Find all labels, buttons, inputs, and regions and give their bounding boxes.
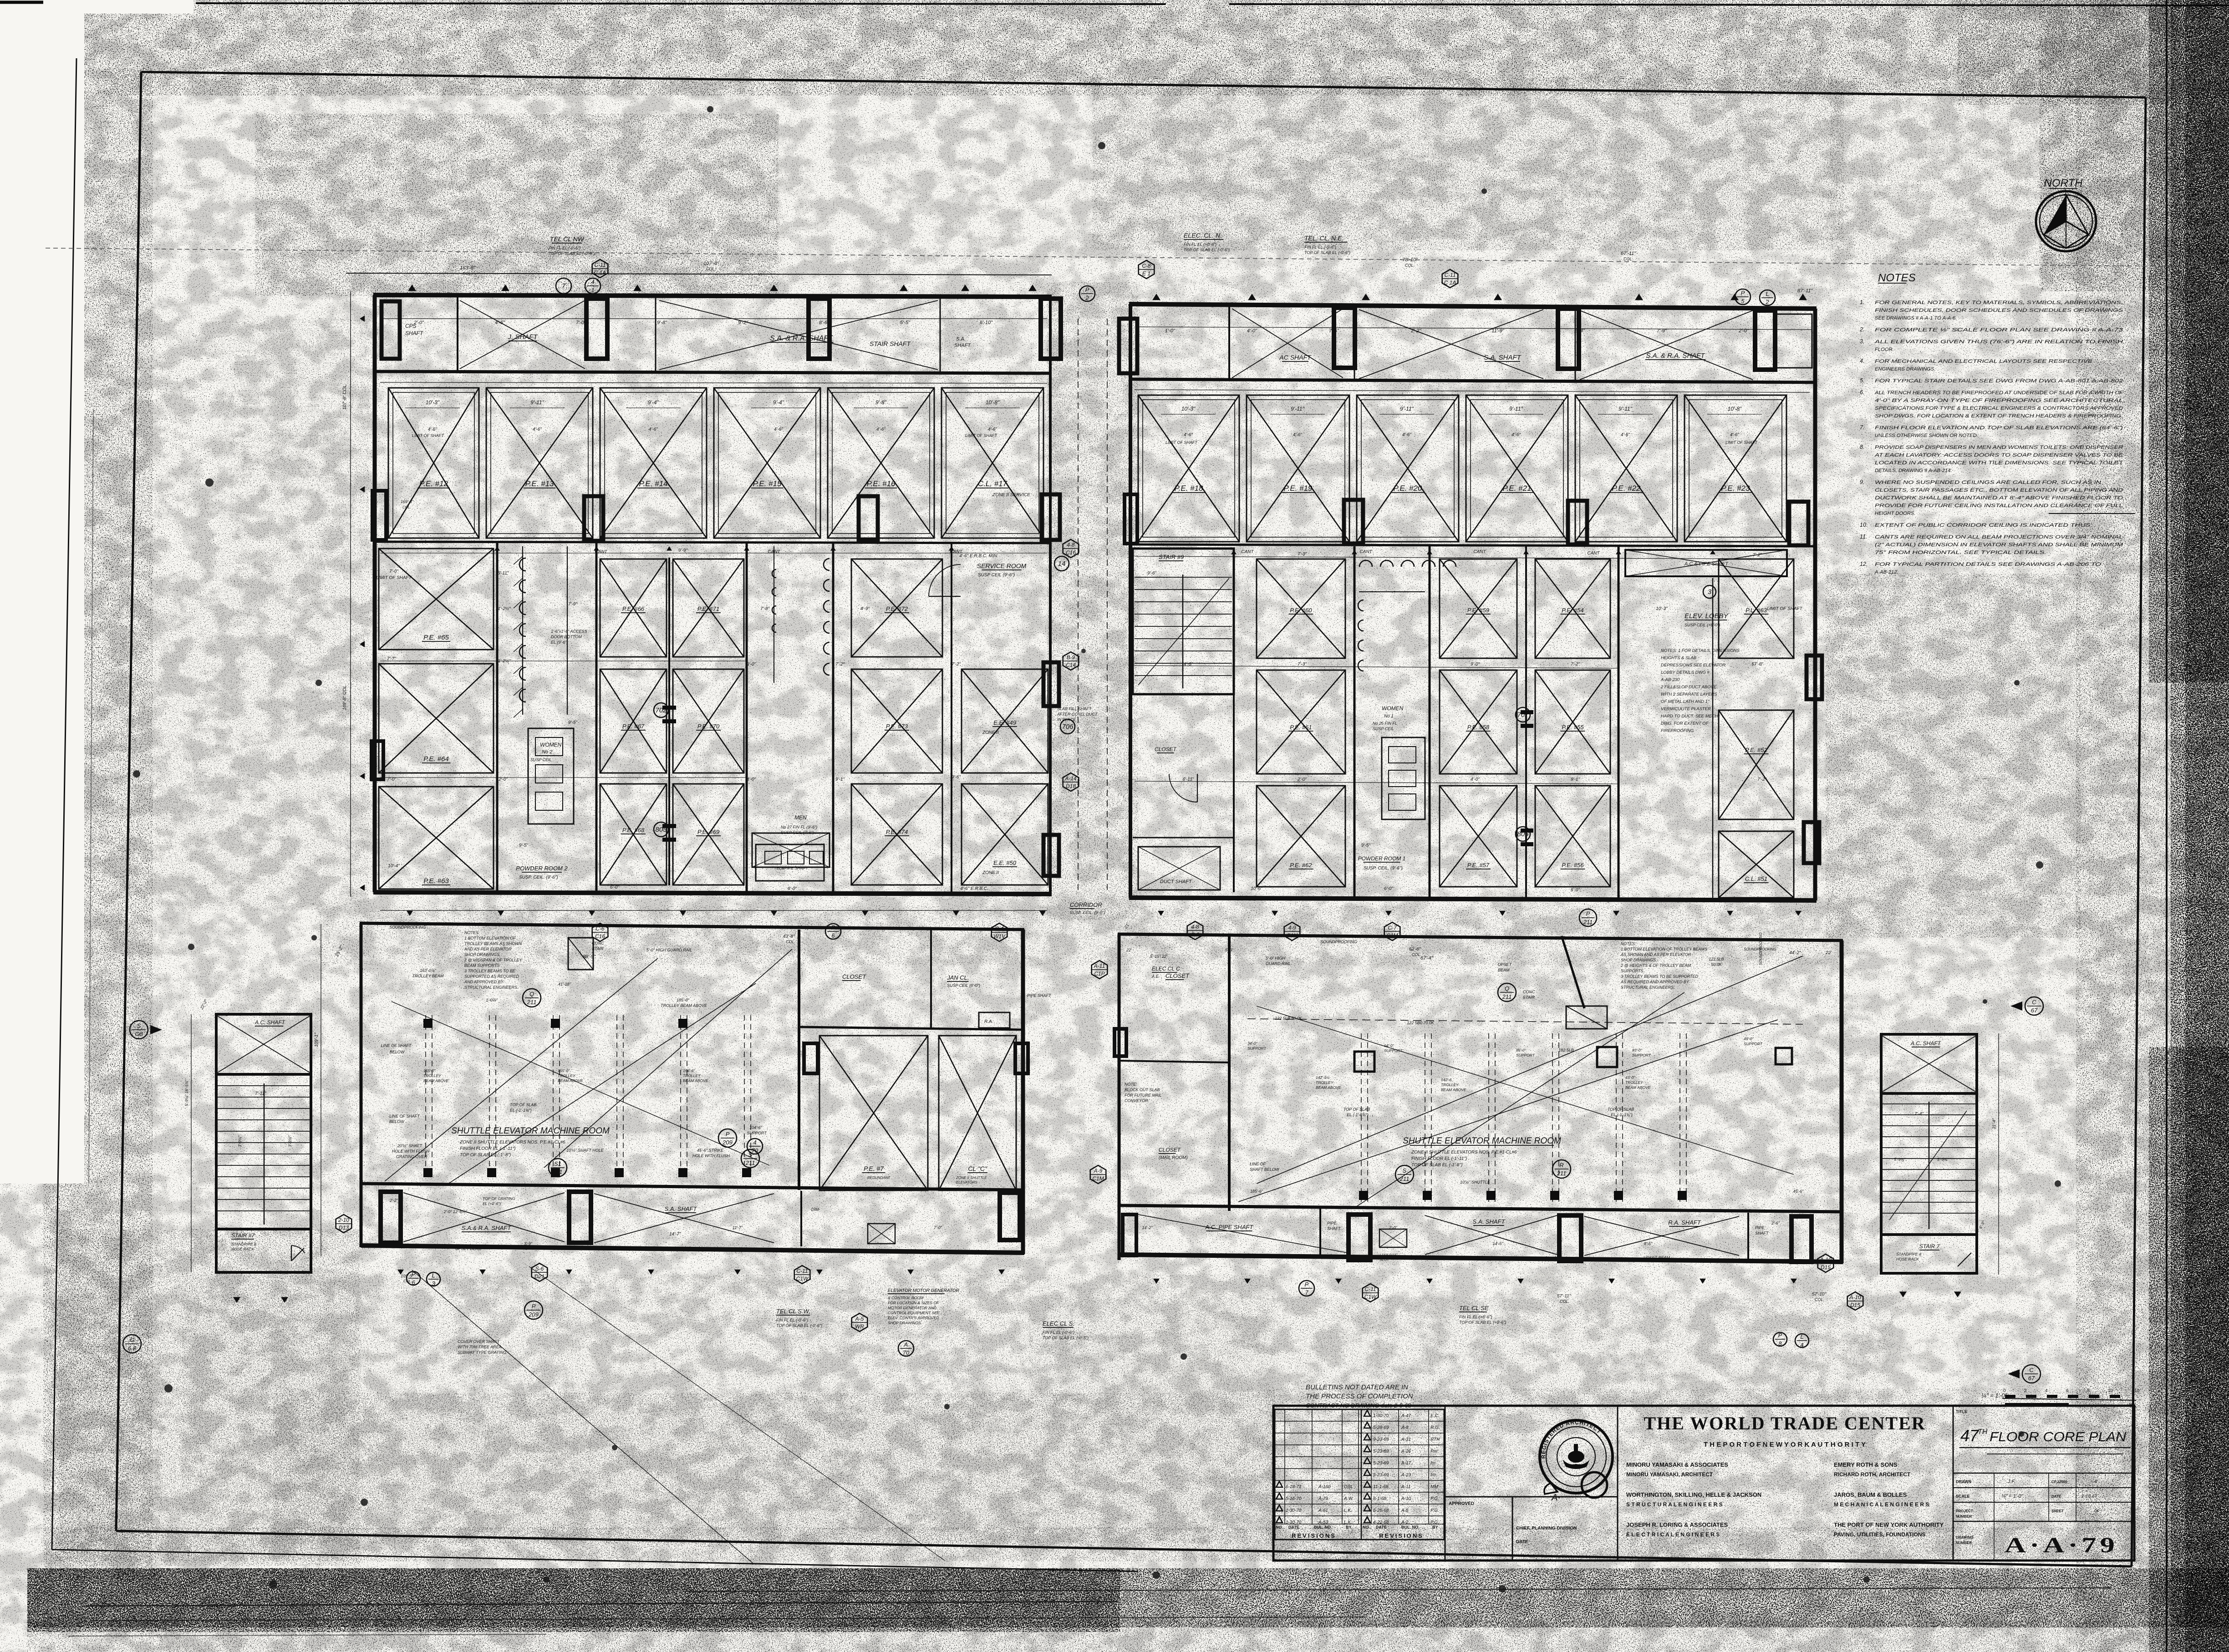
svg-text:& CONTROL ROOM: & CONTROL ROOM: [888, 1296, 924, 1300]
svg-text:¼" = 1'-0": ¼" = 1'-0": [2001, 1494, 2024, 1499]
svg-text:A-160: A-160: [1318, 1484, 1331, 1489]
svg-text:9'-4": 9'-4": [648, 399, 659, 406]
svg-text:34'-0": 34'-0": [1247, 1041, 1258, 1046]
svg-text:SUPPORT: SUPPORT: [1744, 1042, 1763, 1046]
svg-text:SUSP. CEIL. (9'-6"): SUSP. CEIL. (9'-6"): [519, 875, 558, 880]
svg-text:ZONE II: ZONE II: [982, 730, 999, 735]
svg-text:(MAIL ROOM): (MAIL ROOM): [1159, 1155, 1188, 1160]
svg-text:5'-9¾": 5'-9¾": [1894, 1157, 1906, 1162]
svg-text:SOUNDPROOFING: SOUNDPROOFING: [1744, 947, 1776, 951]
svg-text:4'-6": 4'-6": [533, 427, 542, 432]
svg-text:4'-6": 4'-6": [428, 427, 437, 432]
svg-text:6'-0": 6'-0": [788, 886, 797, 891]
svg-text:STRUCTURAL ENGINEERS.: STRUCTURAL ENGINEERS.: [1621, 985, 1674, 990]
svg-text:57'-11": 57'-11": [1557, 1294, 1571, 1299]
svg-text:SUSP. CEIL. (9'-6"): SUSP. CEIL. (9'-6"): [1364, 866, 1403, 871]
svg-text:TOP OF SLAB: TOP OF SLAB: [510, 1103, 536, 1107]
svg-text:SUSP CEIL (9'-6"): SUSP CEIL (9'-6"): [978, 573, 1015, 578]
svg-text:CANTS ARE REQUIRED ON ALL BEAM: CANTS ARE REQUIRED ON ALL BEAM PROJECTIO…: [1875, 534, 2123, 540]
svg-text:70: 70: [752, 1147, 758, 1154]
svg-text:43'-8": 43'-8": [783, 934, 795, 939]
svg-text:A-10: A-10: [1819, 1256, 1832, 1263]
svg-text:FOR GENERAL NOTES, KEY TO MATE: FOR GENERAL NOTES, KEY TO MATERIALS, SYM…: [1875, 300, 2123, 305]
svg-text:STAIR: STAIR: [1523, 995, 1535, 1000]
svg-text:TROLLEY BEAM: TROLLEY BEAM: [412, 974, 444, 978]
svg-text:2 FILL&SLOP DUCT ABOVE: 2 FILL&SLOP DUCT ABOVE: [1660, 685, 1717, 690]
svg-text:P.E. #59: P.E. #59: [1467, 607, 1489, 614]
svg-text:6'-10": 6'-10": [980, 320, 993, 325]
svg-text:9'-1": 9'-1": [835, 777, 845, 782]
svg-text:CONTRACT NO DRAWING da: CONTRACT NO DRAWING date 2-9-68: [1306, 1402, 1411, 1409]
svg-text:OF METAL LATH AND 1": OF METAL LATH AND 1": [1661, 699, 1710, 704]
svg-text:OSL: OSL: [1344, 1484, 1353, 1489]
svg-text:A.C. SHAFT: A.C. SHAFT: [254, 1019, 286, 1026]
svg-text:P.E. #21: P.E. #21: [1502, 484, 1531, 493]
svg-text:SUSP. CEIL. (9'-0"): SUSP. CEIL. (9'-0"): [1070, 910, 1105, 915]
svg-text:3: 3: [432, 1280, 435, 1287]
svg-text:FINISH FLOOR EL (-1'-11"): FINISH FLOOR EL (-1'-11"): [1411, 1156, 1467, 1161]
svg-text:FIREPROOFING: FIREPROOFING: [1661, 728, 1694, 733]
svg-text:4'-0" BY A SPRAY-ON TYPE OF FI: 4'-0" BY A SPRAY-ON TYPE OF FIREPROOFING…: [1875, 398, 2123, 403]
svg-text:JAROS, BAUM & BOLLES: JAROS, BAUM & BOLLES: [1834, 1491, 1907, 1498]
svg-text:FIN FL EL (-0'-6"): FIN FL EL (-0'-6"): [549, 246, 580, 250]
svg-text:11'-2½": 11'-2½": [495, 606, 511, 611]
svg-text:ELEC. CL. N.: ELEC. CL. N.: [1184, 232, 1222, 239]
svg-text:ELEC CL S.: ELEC CL S.: [1043, 1320, 1074, 1327]
svg-text:LIMIT OF SHAFT: LIMIT OF SHAFT: [1725, 440, 1758, 445]
svg-text:83'-0": 83'-0": [1632, 1048, 1643, 1052]
svg-text:RTH: RTH: [1430, 1437, 1440, 1442]
svg-text:HOLE WITH FLUSH: HOLE WITH FLUSH: [692, 1154, 730, 1158]
svg-text:9'-5": 9'-5": [1361, 843, 1370, 848]
svg-text:7'-3": 7'-3": [1298, 552, 1307, 557]
svg-text:SPECIFICATIONS FOR TYPE & ELEC: SPECIFICATIONS FOR TYPE & ELECTRICAL ENG…: [1875, 406, 2123, 411]
svg-text:11-1-68: 11-1-68: [1373, 1484, 1389, 1489]
svg-text:A-14: A-14: [1064, 775, 1077, 782]
svg-text:169'-8" COL.: 169'-8" COL.: [342, 684, 347, 710]
svg-text:SUPPORT: SUPPORT: [1632, 1053, 1651, 1057]
svg-text:STRUCTURAL ENGINEERS.: STRUCTURAL ENGINEERS.: [464, 985, 518, 990]
svg-text:P.E. #12: P.E. #12: [419, 479, 448, 488]
svg-text:67'-11": 67'-11": [1621, 251, 1636, 256]
svg-text:P: P: [1085, 286, 1089, 293]
svg-text:CONC: CONC: [1523, 990, 1535, 994]
svg-text:4: 4: [2045, 1388, 2048, 1393]
svg-text:P: P: [1741, 290, 1745, 296]
svg-text:7'-2": 7'-2": [1757, 777, 1766, 782]
svg-text:IN PLACE: IN PLACE: [1057, 717, 1076, 722]
svg-text:156'-6": 156'-6": [683, 1068, 695, 1073]
svg-text:NUMBER: NUMBER: [1956, 1515, 1972, 1519]
svg-text:9'-11": 9'-11": [1509, 406, 1523, 412]
svg-text:1 BOTTOM ELEVATION OF TROLLEY: 1 BOTTOM ELEVATION OF TROLLEY BEAMS: [1621, 947, 1707, 951]
svg-text:FIN FL EL (-0'-6"): FIN FL EL (-0'-6"): [1043, 1330, 1074, 1335]
svg-text:WOMEN: WOMEN: [1382, 705, 1404, 712]
svg-text:E L E C T R I C A L E N G I: E L E C T R I C A L E N G I N E E R S: [1626, 1531, 1720, 1538]
svg-text:1'-0": 1'-0": [1165, 328, 1176, 334]
svg-text:S.A. SHAFT: S.A. SHAFT: [1484, 354, 1522, 361]
svg-text:182 5LB: 182 5LB: [1558, 1048, 1574, 1052]
svg-text:CLOSETS, STAIR PASSAGES ETC.,: CLOSETS, STAIR PASSAGES ETC., BOTTOM ELE…: [1875, 488, 2123, 493]
svg-text:5'-9¾": 5'-9¾": [1937, 1157, 1949, 1162]
svg-text:2.: 2.: [1859, 326, 1864, 333]
svg-text:4'-6": 4'-6": [876, 427, 885, 432]
svg-text:P.E. #61: P.E. #61: [1290, 724, 1312, 731]
svg-text:4'-6": 4'-6": [1730, 432, 1739, 437]
svg-text:CHIEF, PLANNING DIVISION: CHIEF, PLANNING DIVISION: [1516, 1526, 1577, 1531]
svg-text:CONVEYOR.: CONVEYOR.: [1125, 1098, 1149, 1103]
svg-text:ZONE II SHUTTLE ELEVATORS NOS.: ZONE II SHUTTLE ELEVATORS NOS. P.E.#1-CL…: [459, 1140, 565, 1145]
svg-text:6'-0": 6'-0": [1571, 888, 1580, 893]
svg-text:C-11: C-11: [796, 1268, 808, 1274]
svg-text:211: 211: [745, 1159, 755, 1166]
svg-text:ELEVATORS: ELEVATORS: [956, 1180, 978, 1184]
svg-text:A-47: A-47: [1401, 1413, 1411, 1418]
svg-text:P.E. #66: P.E. #66: [622, 605, 645, 612]
svg-text:CORRIDOR: CORRIDOR: [1070, 901, 1102, 908]
svg-text:BEAM SUPPORTS: BEAM SUPPORTS: [464, 963, 499, 968]
svg-text:SHOP DRAWINGS.: SHOP DRAWINGS.: [464, 952, 501, 957]
svg-text:P.E. #68: P.E. #68: [622, 827, 645, 834]
svg-text:3'-9¾": 3'-9¾": [288, 1135, 292, 1147]
svg-text:L.K.: L.K.: [1344, 1508, 1352, 1513]
svg-text:P: P: [1586, 910, 1590, 917]
svg-text:SHUTTLE ELEVATOR MACHINE RO: SHUTTLE ELEVATOR MACHINE ROOM: [1403, 1136, 1561, 1146]
svg-text:7'-2": 7'-2": [835, 662, 845, 667]
svg-text:2'-0": 2'-0": [1738, 328, 1749, 334]
svg-text:SUPPORT: SUPPORT: [1384, 1048, 1403, 1053]
svg-text:P.E. #70: P.E. #70: [697, 723, 720, 730]
svg-text:A-23: A-23: [1401, 1473, 1411, 1478]
svg-text:FOR FUTURE MAIL: FOR FUTURE MAIL: [1125, 1093, 1162, 1098]
svg-text:S T R U C T U R A L E N G I: S T R U C T U R A L E N G I N E E R S: [1626, 1501, 1723, 1508]
svg-text:SHEET: SHEET: [2051, 1509, 2064, 1513]
svg-text:Pm: Pm: [1430, 1449, 1437, 1454]
svg-text:185'-0": 185'-0": [677, 998, 690, 1002]
svg-text:P.G.: P.G.: [1430, 1496, 1439, 1501]
svg-text:ELEV. LOBBY: ELEV. LOBBY: [1684, 612, 1729, 620]
svg-text:FOR TYPICAL PARTITION DETAILS: FOR TYPICAL PARTITION DETAILS SEE DRAWIN…: [1875, 562, 2101, 567]
svg-text:No 25 FIN FL: No 25 FIN FL: [1373, 721, 1397, 726]
svg-text:P.E. #22: P.E. #22: [1612, 484, 1641, 493]
svg-text:SOUNDPROOFING: SOUNDPROOFING: [1320, 940, 1357, 944]
svg-text:SHOP DRAWINGS.: SHOP DRAWINGS.: [1621, 958, 1657, 962]
svg-text:POWDER ROOM 2: POWDER ROOM 2: [516, 865, 568, 872]
svg-text:AS REQUIRED AND APPROVED BY: AS REQUIRED AND APPROVED BY: [1620, 980, 1690, 984]
svg-text:C1P: C1P: [1094, 971, 1104, 977]
svg-text:8-1-68: 8-1-68: [1373, 1496, 1386, 1501]
svg-text:TH: TH: [1978, 1428, 1988, 1436]
svg-text:TEL CL S.W.: TEL CL S.W.: [776, 1308, 810, 1315]
svg-text:9'-11": 9'-11": [1400, 406, 1414, 412]
svg-text:4'-0": 4'-0": [1471, 777, 1480, 782]
svg-text:10'-4": 10'-4": [388, 864, 400, 869]
svg-text:5'-0" HIGH GUARD RAIL: 5'-0" HIGH GUARD RAIL: [646, 948, 692, 952]
svg-text:NOTE:: NOTE:: [1125, 1082, 1137, 1087]
svg-text:SHAFT BELOW: SHAFT BELOW: [1250, 1167, 1280, 1172]
svg-text:7'-11": 7'-11": [255, 1091, 266, 1096]
svg-text:1.: 1.: [1860, 299, 1864, 305]
svg-text:L: L: [1800, 1333, 1803, 1340]
svg-text:COL.: COL.: [1412, 952, 1421, 957]
svg-text:107'-8" COL.: 107'-8" COL.: [342, 384, 347, 410]
svg-text:MINORU YAMASAKI, ARCHITECT: MINORU YAMASAKI, ARCHITECT: [1626, 1471, 1713, 1478]
svg-text:TROLLEY: TROLLEY: [683, 1073, 701, 1078]
svg-text:BY: BY: [1346, 1525, 1352, 1530]
svg-text:C: C: [2029, 1367, 2034, 1373]
svg-text:P.E. #20: P.E. #20: [1393, 484, 1422, 493]
svg-text:LIMIT OF SHAFT: LIMIT OF SHAFT: [1165, 440, 1198, 445]
svg-text:PAVING, UTILITIES, FOUNDATIONS: PAVING, UTILITIES, FOUNDATIONS: [1834, 1531, 1925, 1538]
svg-text:1'-0⅞": 1'-0⅞": [486, 998, 498, 1002]
svg-text:211: 211: [527, 999, 537, 1006]
svg-text:D15: D15: [1850, 1302, 1860, 1308]
svg-text:A-61: A-61: [1318, 1508, 1328, 1513]
svg-text:TEL. CL. N.E.: TEL. CL. N.E.: [1304, 234, 1344, 242]
svg-text:4'-6": 4'-6": [1184, 662, 1193, 667]
svg-text:J.F.: J.F.: [2007, 1479, 2015, 1484]
svg-text:155'-0": 155'-0": [558, 1068, 570, 1073]
svg-text:122 5B0 70.0K: 122 5B0 70.0K: [1407, 1021, 1435, 1025]
svg-text:S: S: [1403, 1167, 1407, 1174]
svg-text:121 5LB: 121 5LB: [1709, 957, 1724, 961]
svg-text:TROLLEY: TROLLEY: [558, 1073, 576, 1078]
svg-text:TOP OF SLAB: TOP OF SLAB: [1344, 1107, 1370, 1112]
svg-text:8.: 8.: [1860, 444, 1864, 450]
svg-text:P.E. #73: P.E. #73: [886, 723, 908, 730]
svg-text:7'-7": 7'-7": [387, 656, 396, 661]
svg-text:P.E. #58: P.E. #58: [1467, 724, 1490, 731]
svg-text:78'-10": 78'-10": [1402, 257, 1418, 263]
svg-text:8: 8: [1778, 1340, 1782, 1347]
svg-text:STAIR 7: STAIR 7: [1919, 1243, 1940, 1250]
svg-text:THE PORT OF NEW YORK AUTHORITY: THE PORT OF NEW YORK AUTHORITY: [1834, 1521, 1944, 1528]
svg-text:P: P: [1305, 1281, 1309, 1288]
svg-text:FINISH FLOOR ELEVATION AND TOP: FINISH FLOOR ELEVATION AND TOP OF SLAB E…: [1875, 425, 2123, 431]
svg-text:TROLLEY BEAM ABOVE: TROLLEY BEAM ABOVE: [661, 1003, 707, 1008]
svg-text:UPSET: UPSET: [1498, 962, 1512, 967]
svg-text:22': 22': [1825, 951, 1832, 956]
svg-text:TROLLEY: TROLLEY: [1625, 1080, 1644, 1085]
svg-text:NOTES:: NOTES:: [1621, 941, 1636, 946]
svg-text:169'-8": 169'-8": [401, 499, 414, 504]
svg-text:57'-10": 57'-10": [1812, 1292, 1826, 1297]
svg-text:FIN FL EL (-0'-6"): FIN FL EL (-0'-6"): [776, 1318, 808, 1322]
svg-text:BEAM ABOVE: BEAM ABOVE: [1441, 1088, 1466, 1092]
svg-text:AT EACH LAVATORY. ACCESS DOORS: AT EACH LAVATORY. ACCESS DOORS TO SOAP D…: [1874, 452, 2123, 458]
svg-text:JOSEPH R. LORING & ASSOCIATES: JOSEPH R. LORING & ASSOCIATES: [1626, 1521, 1728, 1528]
svg-text:WITH 2 SEPARATE LAYERS: WITH 2 SEPARATE LAYERS: [1661, 692, 1717, 697]
svg-text:7'-5": 7'-5": [1329, 328, 1339, 334]
svg-text:NORTH: NORTH: [2044, 177, 2083, 189]
svg-text:155'-0": 155'-0": [423, 1068, 436, 1073]
svg-text:4'-0": 4'-0": [1247, 328, 1257, 334]
svg-text:BEAM ABOVE: BEAM ABOVE: [423, 1078, 449, 1083]
svg-text:SCALE: SCALE: [1956, 1494, 1970, 1499]
svg-text:COL.: COL.: [1623, 257, 1633, 261]
svg-text:209: 209: [722, 1139, 733, 1146]
svg-text:4-22-68: 4-22-68: [1373, 1520, 1389, 1525]
svg-text:9'-0": 9'-0": [747, 662, 756, 667]
svg-text:No 1: No 1: [1384, 714, 1394, 719]
svg-text:3'-9": 3'-9": [524, 1241, 533, 1246]
svg-text:P.E. #19: P.E. #19: [1283, 484, 1313, 493]
svg-text:6'-0": 6'-0": [610, 885, 619, 890]
svg-text:SUPPORTED AS REQUIRED: SUPPORTED AS REQUIRED: [464, 974, 519, 979]
svg-text:LIMIT OF SHAFT: LIMIT OF SHAFT: [376, 575, 412, 580]
svg-text:ZONE II SHUTTLE: ZONE II SHUTTLE: [956, 1176, 987, 1180]
svg-text:DUCTWORK SHALL BE MAINTAINED A: DUCTWORK SHALL BE MAINTAINED AT 8'-4" AB…: [1875, 495, 2123, 501]
svg-text:S-6: S-6: [535, 1266, 544, 1272]
svg-text:E.E. #49: E.E. #49: [993, 719, 1016, 726]
svg-text:2 @ HEIGHTS & OF TROLLEY BEAM: 2 @ HEIGHTS & OF TROLLEY BEAM: [1620, 963, 1691, 968]
svg-text:WOMEN: WOMEN: [540, 742, 562, 748]
svg-text:11.: 11.: [1860, 534, 1867, 540]
svg-text:49'-0": 49'-0": [1744, 1037, 1754, 1041]
svg-text:2'-6": 2'-6": [1771, 1221, 1780, 1225]
svg-text:7'-0": 7'-0": [934, 1225, 942, 1230]
svg-text:211: 211: [1557, 1170, 1567, 1177]
svg-text:P.E. #63: P.E. #63: [423, 877, 449, 885]
svg-text:SOUNDPROOFING: SOUNDPROOFING: [389, 925, 426, 930]
svg-text:TOP OF SLAB EL (-1'-8"): TOP OF SLAB EL (-1'-8"): [1411, 1163, 1462, 1168]
svg-text:7'-8": 7'-8": [760, 606, 769, 611]
svg-text:BEAM ABOVE: BEAM ABOVE: [1625, 1085, 1651, 1090]
svg-text:57'-6": 57'-6": [1751, 662, 1763, 667]
svg-text:A-5: A-5: [1401, 1508, 1409, 1513]
svg-text:TROLLEY: TROLLEY: [1441, 1083, 1459, 1087]
svg-text:9'-11": 9'-11": [1618, 406, 1632, 412]
svg-text:1 BOTTOM ELEVATION OF: 1 BOTTOM ELEVATION OF: [464, 936, 516, 940]
svg-text:P.E. #72: P.E. #72: [886, 605, 908, 612]
svg-text:CONTROL EQUIPMENT SEE: CONTROL EQUIPMENT SEE: [888, 1311, 940, 1315]
svg-text:211: 211: [1502, 993, 1512, 1000]
svg-text:PIPE: PIPE: [1755, 1225, 1765, 1230]
svg-text:P.L. #63: P.L. #63: [1746, 607, 1767, 614]
svg-text:11'-9": 11'-9": [1491, 328, 1504, 334]
svg-text:P.E. #56: P.E. #56: [1562, 862, 1584, 869]
svg-text:A.W.: A.W.: [1344, 1496, 1354, 1501]
svg-text:POWDER ROOM 1: POWDER ROOM 1: [1358, 855, 1406, 862]
svg-text:TEL CL NW: TEL CL NW: [550, 235, 585, 243]
svg-text:6: 6: [2066, 1388, 2069, 1393]
svg-text:FINISH SCHEDULES, DOOR SCHEDUL: FINISH SCHEDULES, DOOR SCHEDULES AND SCH…: [1875, 308, 2123, 313]
svg-text:No 2: No 2: [542, 749, 552, 755]
svg-text:109'-5": 109'-5": [401, 1274, 414, 1278]
svg-text:706: 706: [1062, 723, 1074, 731]
svg-text:P.E. #52: P.E. #52: [1745, 747, 1767, 753]
svg-text:7: 7: [1305, 1289, 1308, 1296]
svg-text:BEAM ABOVE: BEAM ABOVE: [558, 1078, 583, 1083]
svg-text:LIMIT OF SHAFT: LIMIT OF SHAFT: [1767, 606, 1802, 611]
svg-text:9'-8": 9'-8": [875, 399, 887, 406]
svg-text:5-28-69: 5-28-69: [1373, 1425, 1389, 1430]
svg-text:BY: BY: [1432, 1525, 1438, 1530]
svg-text:LINE OF: LINE OF: [1250, 1162, 1266, 1166]
svg-text:C-8: C-8: [1142, 263, 1151, 269]
svg-text:SUSP CEIL: SUSP CEIL: [1373, 727, 1394, 731]
svg-text:HARD TO DUCT. SEE MECH: HARD TO DUCT. SEE MECH: [1661, 714, 1718, 719]
svg-text:DETAILS, DRAWING # A-AB-214.: DETAILS, DRAWING # A-AB-214.: [1875, 468, 1952, 473]
svg-text:A-10: A-10: [1849, 1294, 1861, 1301]
svg-text:707: 707: [1517, 711, 1529, 719]
svg-text:BEAM ABOVE: BEAM ABOVE: [683, 1078, 708, 1083]
svg-text:S1: S1: [554, 1160, 561, 1167]
svg-text:ELEV. CONTR'S APPROVED: ELEV. CONTR'S APPROVED: [888, 1316, 939, 1320]
svg-text:C1W: C1W: [1364, 1294, 1377, 1300]
svg-text:A-79: A-79: [1318, 1496, 1328, 1501]
svg-text:14: 14: [1058, 560, 1066, 568]
svg-text:1'-6"x1'-6" ACCESS: 1'-6"x1'-6" ACCESS: [551, 629, 587, 634]
svg-text:7'-0": 7'-0": [389, 569, 398, 574]
svg-text:A.E.: A.E.: [1151, 974, 1160, 979]
svg-text:TOP OF SLAB EL (-0'-6"): TOP OF SLAB EL (-0'-6"): [776, 1323, 822, 1328]
svg-text:FOR COMPLETE ⅛" SCALE FLOOR: FOR COMPLETE ⅛" SCALE FLOOR PLAN SEE DRA…: [1875, 327, 2123, 333]
svg-text:J. SHAFT: J. SHAFT: [507, 333, 538, 341]
svg-text:SHOP DWGS. FOR LOCATION & EXTE: SHOP DWGS. FOR LOCATION & EXTENT OF TREN…: [1875, 413, 2123, 419]
svg-text:WORTHINGTON, SKILLING, HELLE &: WORTHINGTON, SKILLING, HELLE & JACKSON: [1626, 1491, 1761, 1498]
svg-text:4'-0": 4'-0": [747, 777, 756, 782]
svg-text:3'-9¾": 3'-9¾": [238, 1135, 242, 1147]
svg-text:ZONE II SHUTTLE ELEVATORS NOS.: ZONE II SHUTTLE ELEVATORS NOS. P.E.#1-CL…: [1411, 1150, 1517, 1155]
svg-text:4'-6": 4'-6": [1511, 432, 1521, 437]
svg-text:7'-9": 7'-9": [1657, 328, 1667, 334]
svg-text:CLOSET: CLOSET: [842, 973, 866, 980]
svg-text:STANDPIPE &: STANDPIPE &: [231, 1242, 257, 1246]
svg-text:702: 702: [655, 707, 667, 714]
svg-text:6-18-71: 6-18-71: [1286, 1484, 1301, 1489]
svg-text:STANDPIPE &: STANDPIPE &: [1896, 1252, 1922, 1256]
svg-text:10'½" SHUTTLE: 10'½" SHUTTLE: [1460, 1180, 1491, 1184]
svg-text:S.A. SHAFT: S.A. SHAFT: [1473, 1218, 1506, 1225]
svg-text:185'-6": 185'-6": [1250, 1189, 1263, 1194]
svg-text:50.0K: 50.0K: [1711, 962, 1722, 967]
svg-text:6.8: 6.8: [128, 1345, 137, 1352]
svg-text:EL (+0'-6"): EL (+0'-6"): [483, 1201, 501, 1206]
svg-text:C.L. #17: C.L. #17: [978, 479, 1008, 488]
svg-text:A·A·79: A·A·79: [2005, 1533, 2118, 1557]
svg-text:L1&8-9/16": L1&8-9/16": [1379, 1253, 1398, 1257]
svg-text:87'-11": 87'-11": [1797, 288, 1813, 294]
svg-text:142'-6: 142'-6: [1441, 1078, 1452, 1082]
svg-text:C1W: C1W: [796, 1276, 809, 1282]
svg-text:DEPRESSIONS SEE ELEVATOR: DEPRESSIONS SEE ELEVATOR: [1661, 663, 1725, 668]
svg-text:41'-18": 41'-18": [558, 982, 571, 986]
svg-text:9'-9": 9'-9": [678, 548, 687, 553]
svg-text:LOBBY DETAILS DWG #: LOBBY DETAILS DWG #: [1661, 670, 1710, 675]
svg-text:feet: feet: [2129, 1402, 2136, 1407]
svg-text:47: 47: [1960, 1426, 1980, 1445]
svg-text:SUSP CEIL (8'-0"): SUSP CEIL (8'-0"): [947, 983, 980, 988]
svg-text:CLOSET: CLOSET: [1159, 1147, 1181, 1153]
svg-text:S.A. & R.A. SHAFT: S.A. & R.A. SHAFT: [1646, 352, 1705, 360]
svg-text:DRAWN: DRAWN: [1956, 1479, 1971, 1484]
svg-text:STAIR #9: STAIR #9: [1159, 554, 1184, 560]
svg-text:TOP OF SLAB EL (-0'-5"): TOP OF SLAB EL (-0'-5"): [1043, 1336, 1089, 1340]
svg-text:4: 4: [591, 279, 594, 285]
svg-text:2'-0" 12'-8½": 2'-0" 12'-8½": [443, 1210, 468, 1214]
svg-text:MINORU YAMASAKI & ASSOCIATES: MINORU YAMASAKI & ASSOCIATES: [1626, 1461, 1728, 1468]
svg-text:DATE: DATE: [1516, 1540, 1528, 1545]
svg-text:C14: C14: [1066, 662, 1076, 668]
svg-text:20'½" SHAFT: 20'½" SHAFT: [397, 1144, 423, 1148]
svg-text:SHOP DRAWINGS.: SHOP DRAWINGS.: [888, 1321, 922, 1325]
svg-text:D15: D15: [1821, 1264, 1831, 1271]
svg-text:COL.: COL.: [1405, 263, 1415, 268]
svg-text:10'-3": 10'-3": [1181, 406, 1196, 412]
svg-text:P.E. #15: P.E. #15: [753, 479, 782, 488]
svg-text:COL.: COL.: [1815, 1297, 1824, 1302]
